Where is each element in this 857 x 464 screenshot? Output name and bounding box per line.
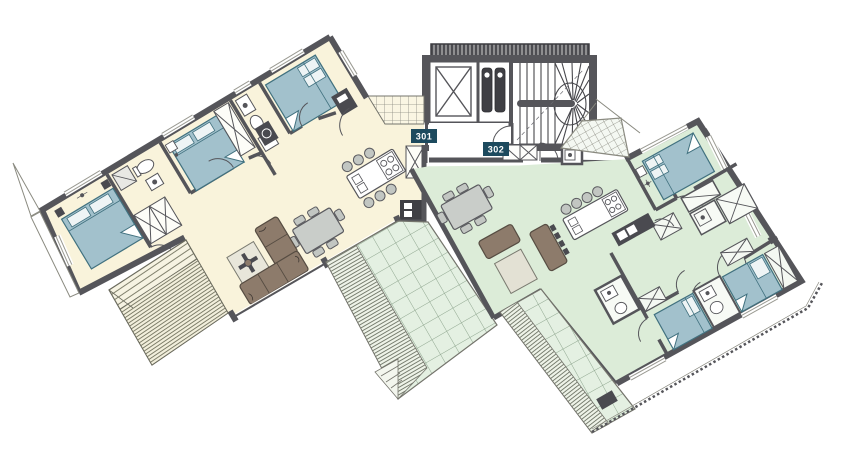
svg-text:302: 302 (488, 145, 505, 155)
svg-text:301: 301 (416, 132, 433, 142)
